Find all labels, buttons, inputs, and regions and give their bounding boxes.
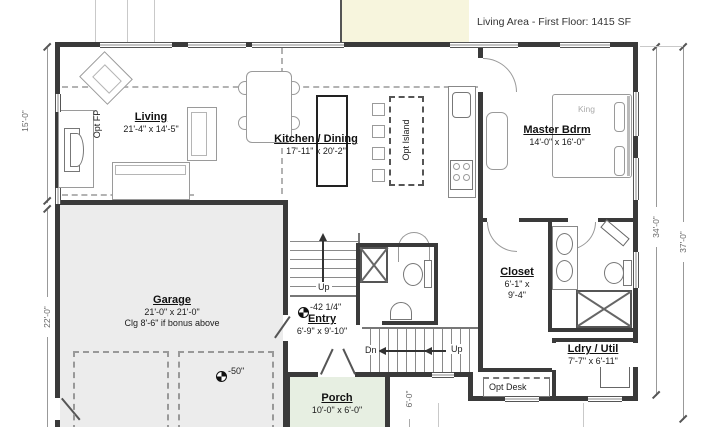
window (505, 396, 539, 402)
garage-elevation-label: -50" (228, 366, 244, 376)
powder-door-opening (360, 321, 382, 325)
living-label: Living 21'-4" x 14'-5" (91, 111, 211, 135)
stairs-up-label: Up (316, 282, 332, 292)
upper-floor-fragment (340, 0, 469, 42)
dim-porch-depth: 6'-0" (404, 379, 414, 419)
garage-parking-outline (73, 351, 169, 427)
wall-front-jog (468, 372, 473, 401)
vanity-sink (556, 260, 573, 282)
window (560, 42, 610, 48)
window (432, 372, 454, 378)
closet-bottom-wall (478, 368, 552, 372)
closet-door-swing (487, 222, 517, 252)
kitchen-dining-label: Kitchen / Dining 17'-11" x 20'-2" (256, 133, 376, 157)
wall-front-entry-right (355, 372, 389, 377)
garage-side-door-opening (55, 398, 60, 420)
garage-note: Clg 8'-6" if bonus above (92, 318, 252, 329)
dim-right-outer: 37'-0" (678, 222, 688, 262)
bath-toilet-tank (623, 260, 632, 286)
dim-tick (679, 415, 687, 423)
stair-direction-line (384, 350, 426, 352)
kitchen-sink (452, 92, 471, 118)
garage-dims: 21'-0" x 21'-0" (92, 307, 252, 318)
dim-tick (652, 391, 660, 399)
stairs-dn-label: Dn (363, 345, 379, 355)
stair-up-arrow (319, 233, 327, 241)
extension-line (640, 46, 683, 47)
island-stool (372, 169, 385, 182)
island-stool (372, 103, 385, 116)
vanity-sink (556, 233, 573, 255)
stair-edge (362, 327, 480, 329)
garage-parking-outline (178, 351, 274, 427)
extension-line (583, 403, 584, 427)
stair-dn-arrow (378, 347, 386, 355)
entry-dims: 6'-9" x 9'-10" (282, 326, 362, 337)
closet-label: Closet 6'-1" x 9'-4" (477, 266, 557, 301)
stair-edge (290, 295, 360, 297)
ldry-top-wall (552, 338, 638, 342)
opt-island-label: Opt Island (401, 105, 411, 175)
garage-name: Garage (92, 294, 252, 307)
fireplace-arc (70, 133, 84, 167)
linen-shelf (600, 220, 629, 247)
kitchen-dining-dims: 17'-11" x 20'-2" (256, 146, 376, 157)
window (633, 158, 639, 200)
powder-right-wall (434, 243, 438, 325)
front-door-leaf (320, 349, 333, 375)
master-bdrm-dims: 14'-0" x 16'-0" (497, 137, 617, 148)
understair-closet-arc (398, 232, 430, 262)
burner (453, 163, 460, 170)
entry-elevation-label: -42 1/4" (310, 302, 341, 312)
projection-line (95, 0, 96, 42)
pillow (614, 146, 625, 176)
dim-right-inner: 34'-0" (651, 207, 661, 247)
headboard (627, 96, 630, 176)
garage-label: Garage 21'-0" x 21'-0" Clg 8'-6" if bonu… (92, 294, 252, 329)
burner (463, 163, 470, 170)
extension-line (438, 403, 439, 427)
window (588, 396, 622, 402)
burner (453, 174, 460, 181)
dim-left-upper: 15'-0" (20, 101, 30, 141)
window (633, 252, 639, 288)
window (55, 94, 61, 112)
master-door-swing (483, 58, 517, 92)
closet-dims-line2: 9'-4" (477, 290, 557, 301)
porch-label: Porch 10'-0" x 6'-0" (287, 392, 387, 416)
dim-left-lower: 22'-0" (42, 297, 52, 337)
porch-dims: 10'-0" x 6'-0" (287, 405, 387, 416)
window (100, 42, 172, 48)
powder-toilet-tank (424, 260, 432, 288)
living-dims: 21'-4" x 14'-5" (91, 124, 211, 135)
stairs-up2-label: Up (449, 344, 465, 354)
elevation-marker-icon (216, 371, 227, 382)
ldry-util-dims: 7'-7" x 6'-11" (548, 356, 638, 367)
entry-label: Entry 6'-9" x 9'-10" (282, 313, 362, 337)
dim-line (47, 48, 48, 203)
living-name: Living (91, 111, 211, 124)
ldry-util-label: Ldry / Util 7'-7" x 6'-11" (548, 343, 638, 367)
bath-bottom-wall (548, 328, 638, 332)
floor-plan: Living Area - First Floor: 1415 SF -50" … (0, 0, 720, 427)
projection-line (127, 0, 128, 42)
entry-name: Entry (282, 313, 362, 326)
window (55, 188, 61, 204)
window (633, 92, 639, 136)
kitchen-dining-name: Kitchen / Dining (256, 133, 376, 146)
living-area-title: Living Area - First Floor: 1415 SF (477, 16, 631, 28)
front-door-leaf (342, 349, 355, 375)
master-bdrm-label: Master Bdrm 14'-0" x 16'-0" (497, 124, 617, 148)
ldry-util-name: Ldry / Util (548, 343, 638, 356)
bath-toilet-bowl (604, 262, 624, 284)
powder-toilet-bowl (403, 263, 423, 286)
window (450, 42, 518, 48)
stair-up-arrow (424, 347, 432, 355)
window (188, 42, 246, 48)
sofa-back (115, 165, 186, 175)
projection-line (154, 0, 155, 42)
stair-direction-line (430, 350, 446, 352)
closet-dims-line1: 6'-1" x (477, 279, 557, 290)
wall-front-mid (385, 372, 473, 377)
wall-left-garage (55, 200, 60, 427)
powder-sink (390, 302, 412, 320)
opt-desk-label: Opt Desk (489, 382, 527, 392)
window (252, 42, 344, 48)
garage-top-wall (60, 200, 288, 205)
closet-name: Closet (477, 266, 557, 279)
burner (463, 174, 470, 181)
king-bed-label: King (578, 104, 595, 114)
porch-name: Porch (287, 392, 387, 405)
master-bdrm-name: Master Bdrm (497, 124, 617, 137)
